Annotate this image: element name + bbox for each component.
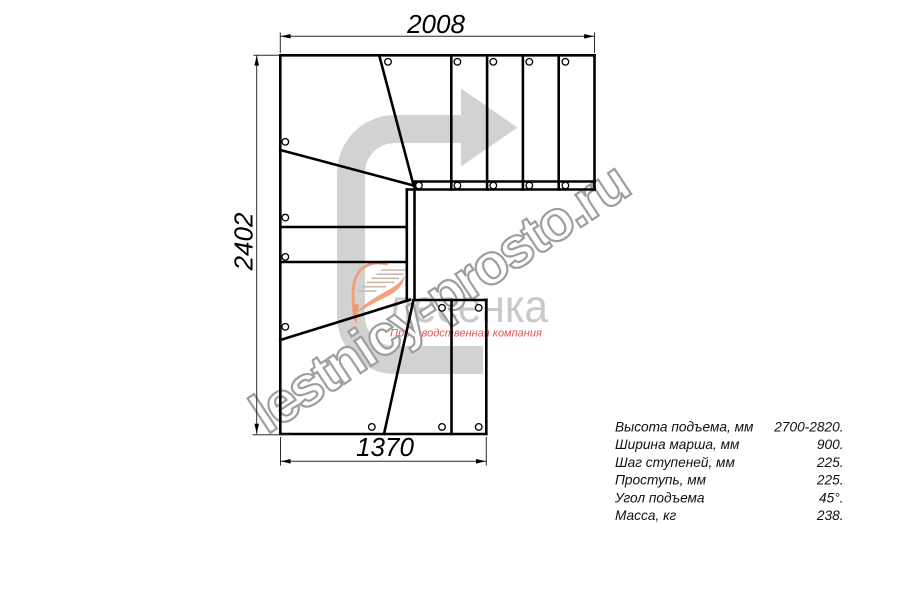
svg-text:1370: 1370: [356, 432, 414, 462]
svg-text:Шаг ступеней, мм: Шаг ступеней, мм: [615, 455, 735, 470]
svg-text:2008: 2008: [406, 9, 465, 39]
svg-text:2700-2820.: 2700-2820.: [773, 420, 843, 435]
svg-text:Ширина марша, мм: Ширина марша, мм: [615, 437, 740, 452]
svg-text:Проступь, мм: Проступь, мм: [615, 473, 707, 488]
svg-text:lestnicy-prosto.ru: lestnicy-prosto.ru: [239, 151, 640, 446]
svg-text:225.: 225.: [816, 455, 844, 470]
svg-text:2402: 2402: [229, 212, 259, 271]
svg-text:Высота подъема, мм: Высота подъема, мм: [615, 420, 754, 435]
svg-text:45°.: 45°.: [819, 490, 844, 505]
svg-text:225.: 225.: [816, 473, 844, 488]
svg-text:Масса, кг: Масса, кг: [615, 508, 677, 523]
svg-text:238.: 238.: [816, 508, 844, 523]
svg-text:Угол подъема: Угол подъема: [614, 490, 705, 505]
svg-text:900.: 900.: [817, 437, 844, 452]
